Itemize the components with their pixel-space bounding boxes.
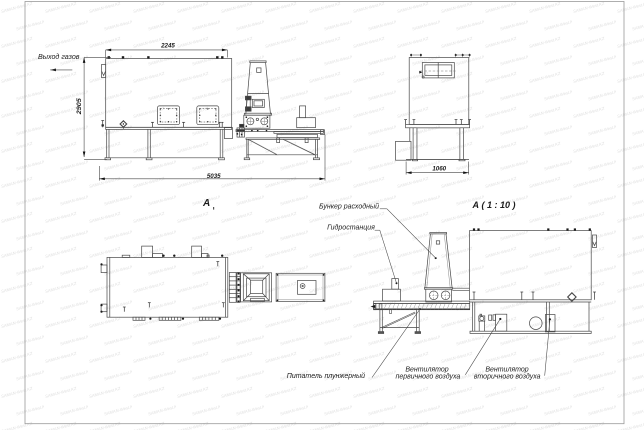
svg-text:А ( 1 : 10 ): А ( 1 : 10 ) bbox=[471, 200, 515, 210]
svg-text:Питатель плунжерный: Питатель плунжерный bbox=[287, 372, 365, 380]
svg-text:вторичного воздуха: вторичного воздуха bbox=[474, 373, 541, 381]
svg-text:А: А bbox=[202, 198, 210, 209]
svg-text:5035: 5035 bbox=[207, 173, 221, 180]
svg-text:Выход газов: Выход газов bbox=[38, 52, 80, 61]
svg-text:2905: 2905 bbox=[76, 98, 83, 116]
svg-text:Гидростанция: Гидростанция bbox=[327, 224, 375, 232]
svg-text:первичного воздуха: первичного воздуха bbox=[395, 373, 460, 381]
svg-text:2245: 2245 bbox=[160, 43, 175, 50]
svg-text:1060: 1060 bbox=[432, 166, 446, 173]
svg-text:Бункер расходный: Бункер расходный bbox=[319, 202, 379, 210]
